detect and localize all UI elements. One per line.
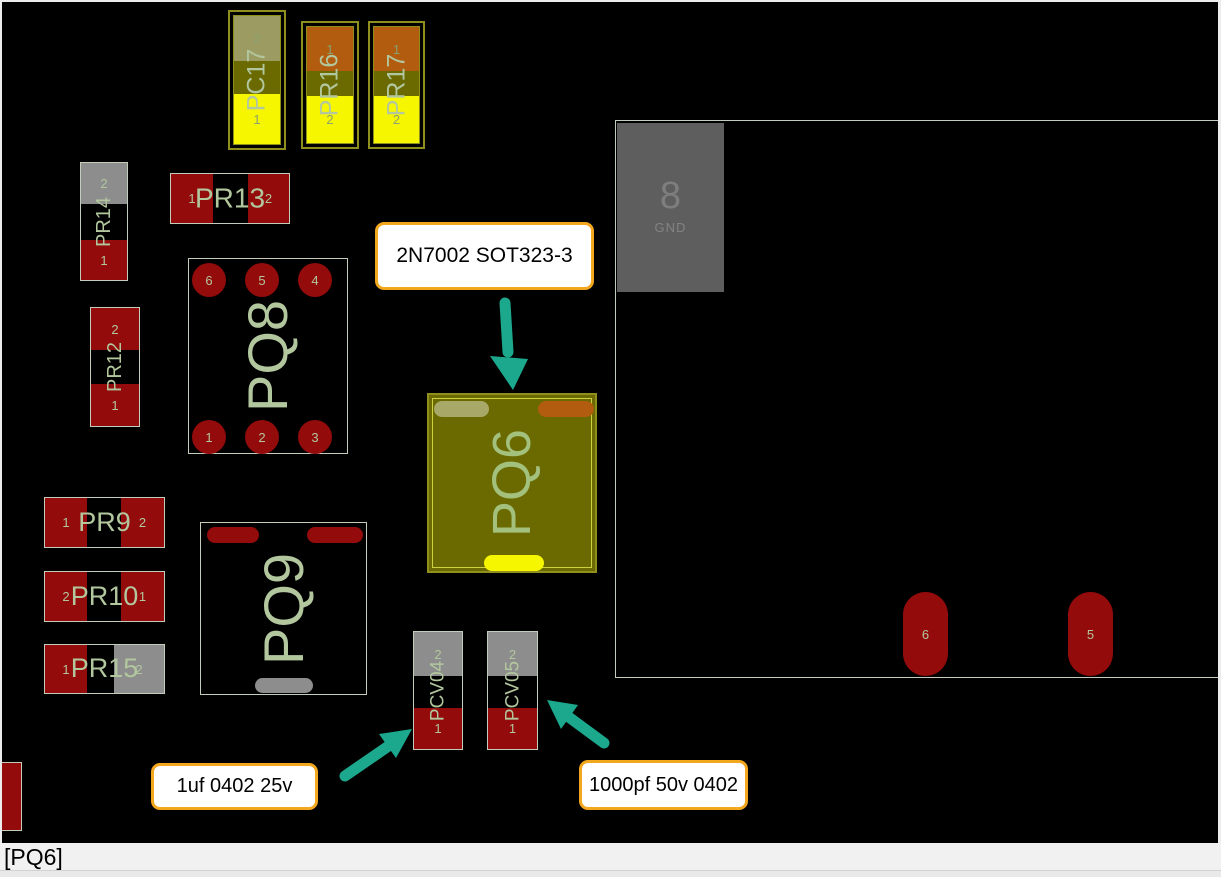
callout-1uf: 1uf 0402 25v xyxy=(151,763,318,810)
arrow-to-pcv05 xyxy=(547,700,604,743)
pad-number: 8 xyxy=(617,177,724,215)
pad-number: 2 xyxy=(393,113,400,126)
gnd-pad[interactable]: 8 GND xyxy=(617,123,724,292)
pad-2[interactable]: 2 xyxy=(488,632,537,676)
component-pcv05[interactable]: 2 1 PCV05 xyxy=(487,631,538,750)
component-body xyxy=(87,572,121,621)
pad-1[interactable]: 1 xyxy=(414,708,462,749)
component-pr13[interactable]: 1 2 PR13 xyxy=(170,173,290,224)
component-body xyxy=(87,498,121,547)
pad-1[interactable]: 1 xyxy=(192,420,226,454)
pad-5[interactable]: 5 xyxy=(1068,592,1113,676)
gnd-label: GND xyxy=(617,221,724,234)
pad-1[interactable]: 1 xyxy=(171,174,213,223)
component-pc17[interactable]: 2 1 PC17 xyxy=(228,10,286,150)
pad-number: 3 xyxy=(311,431,318,444)
pad-number: 6 xyxy=(922,628,929,641)
pad-number: 1 xyxy=(253,113,260,126)
pad-1[interactable]: 1 xyxy=(307,27,353,71)
pad-number: 1 xyxy=(434,722,441,735)
pad-number: 2 xyxy=(135,663,142,676)
component-body xyxy=(91,350,139,384)
component-pr15[interactable]: 1 2 PR15 xyxy=(44,644,165,694)
callout-text: 1uf 0402 25v xyxy=(177,775,293,798)
pad-number: 2 xyxy=(434,648,441,661)
selected-component-indicator: [PQ6] xyxy=(4,844,63,871)
pad-number: 1 xyxy=(62,516,69,529)
component-body xyxy=(374,71,419,96)
pad-number: 2 xyxy=(100,177,107,190)
pad[interactable] xyxy=(538,401,594,417)
pad-number: 1 xyxy=(100,254,107,267)
pad-6[interactable]: 6 xyxy=(192,263,226,297)
component-pq8[interactable]: 6 5 4 1 2 3 PQ8 xyxy=(188,258,348,454)
pad-1[interactable]: 1 xyxy=(121,572,164,621)
pad-number: 1 xyxy=(62,663,69,676)
canvas-left-edge xyxy=(0,0,2,843)
component-pr10[interactable]: 2 1 PR10 xyxy=(44,571,165,622)
pad-1[interactable]: 1 xyxy=(81,240,127,280)
component-pr17[interactable]: 1 2 PR17 xyxy=(368,21,425,149)
arrow-to-pcv04 xyxy=(345,729,412,776)
pad-2[interactable]: 2 xyxy=(307,96,353,143)
pad-2[interactable]: 2 xyxy=(114,645,164,693)
component-body xyxy=(213,174,248,223)
pad-2[interactable]: 2 xyxy=(245,420,279,454)
pad-number: 2 xyxy=(258,431,265,444)
pad-2[interactable]: 2 xyxy=(45,572,87,621)
component-body xyxy=(488,676,537,708)
pad-number: 6 xyxy=(205,274,212,287)
pad[interactable] xyxy=(434,401,489,417)
pad-number: 1 xyxy=(509,722,516,735)
pad-1[interactable]: 1 xyxy=(45,645,87,693)
component-label: PQ8 xyxy=(240,300,296,412)
pad-2[interactable]: 2 xyxy=(374,96,419,143)
component-body xyxy=(307,71,353,96)
pad-2[interactable]: 2 xyxy=(414,632,462,676)
pad-number: 2 xyxy=(111,323,118,336)
edge-pad[interactable] xyxy=(0,762,22,831)
pad-1[interactable]: 1 xyxy=(234,94,280,144)
component-body xyxy=(414,676,462,708)
pad-5[interactable]: 5 xyxy=(245,263,279,297)
pad-number: 1 xyxy=(205,431,212,444)
pad-number: 1 xyxy=(393,43,400,56)
pad[interactable] xyxy=(484,555,544,571)
pad[interactable] xyxy=(307,527,363,543)
pad-2[interactable]: 2 xyxy=(234,16,280,61)
pad-number: 2 xyxy=(509,648,516,661)
pad-number: 2 xyxy=(326,113,333,126)
pad-1[interactable]: 1 xyxy=(374,27,419,71)
pad-number: 5 xyxy=(1087,628,1094,641)
pad[interactable] xyxy=(255,678,313,693)
pad[interactable] xyxy=(207,527,259,543)
pad-number: 1 xyxy=(111,399,118,412)
pad-number: 1 xyxy=(188,192,195,205)
component-courtyard xyxy=(432,398,592,568)
component-pq9[interactable]: PQ9 xyxy=(200,522,367,695)
pad-2[interactable]: 2 xyxy=(121,498,164,547)
pad-6[interactable]: 6 xyxy=(903,592,948,676)
pcb-canvas[interactable]: 8 GND 6 5 2 1 PC17 1 xyxy=(0,0,1221,843)
pad-4[interactable]: 4 xyxy=(298,263,332,297)
canvas-top-edge xyxy=(0,0,1221,2)
arrow-to-pq6 xyxy=(490,303,528,390)
component-body xyxy=(234,61,280,94)
pcb-viewer-window: 8 GND 6 5 2 1 PC17 1 xyxy=(0,0,1221,877)
pad-number: 4 xyxy=(311,274,318,287)
callout-text: 1000pf 50v 0402 xyxy=(589,774,738,797)
component-label: PQ9 xyxy=(256,552,312,664)
component-pr16[interactable]: 1 2 PR16 xyxy=(301,21,359,149)
pad-number: 2 xyxy=(265,192,272,205)
pad-1[interactable]: 1 xyxy=(488,708,537,749)
pad-2[interactable]: 2 xyxy=(81,163,127,204)
component-pr14[interactable]: 2 1 PR14 xyxy=(80,162,128,281)
component-pcv04[interactable]: 2 1 PCV04 xyxy=(413,631,463,750)
component-pr12[interactable]: 2 1 PR12 xyxy=(90,307,140,427)
pad-2[interactable]: 2 xyxy=(91,308,139,350)
pad-number: 2 xyxy=(253,32,260,45)
pad-1[interactable]: 1 xyxy=(91,384,139,426)
pad-number: 5 xyxy=(258,274,265,287)
component-body xyxy=(87,645,114,693)
component-pr9[interactable]: 1 2 PR9 xyxy=(44,497,165,548)
pad-1[interactable]: 1 xyxy=(45,498,87,547)
pad-number: 1 xyxy=(139,590,146,603)
pad-number: 2 xyxy=(139,516,146,529)
statusbar-bottom-strip xyxy=(0,870,1221,877)
callout-text: 2N7002 SOT323-3 xyxy=(396,244,572,268)
pad-3[interactable]: 3 xyxy=(298,420,332,454)
callout-1000pf: 1000pf 50v 0402 xyxy=(579,760,748,810)
component-body xyxy=(81,204,127,240)
pad-2[interactable]: 2 xyxy=(248,174,289,223)
pad-number: 2 xyxy=(62,590,69,603)
pad-number: 1 xyxy=(326,43,333,56)
callout-2n7002: 2N7002 SOT323-3 xyxy=(375,222,594,290)
component-pq6[interactable]: PQ6 xyxy=(427,393,597,573)
statusbar: [PQ6] xyxy=(0,843,1221,877)
